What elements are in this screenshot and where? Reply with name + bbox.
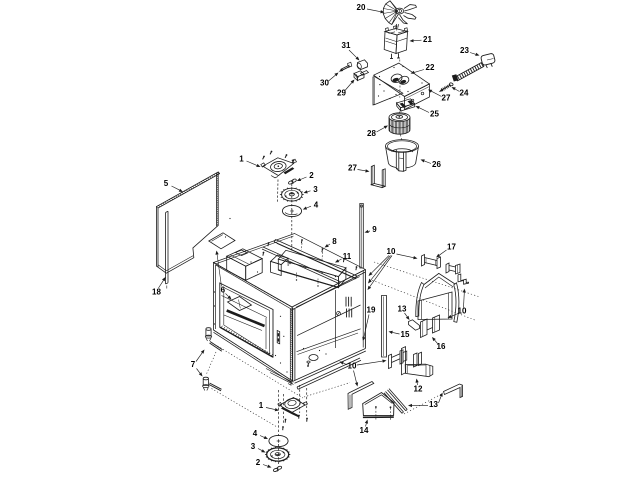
- svg-text:27: 27: [442, 94, 451, 103]
- svg-text:13: 13: [398, 305, 407, 314]
- svg-text:14: 14: [360, 426, 369, 435]
- svg-text:4: 4: [314, 201, 319, 210]
- svg-text:3: 3: [313, 185, 318, 194]
- svg-text:19: 19: [367, 306, 376, 315]
- svg-text:3: 3: [251, 442, 256, 451]
- svg-text:2: 2: [256, 458, 261, 467]
- svg-text:30: 30: [320, 79, 329, 88]
- svg-text:11: 11: [343, 252, 352, 261]
- svg-text:27: 27: [348, 164, 357, 173]
- svg-text:21: 21: [423, 35, 432, 44]
- svg-text:23: 23: [460, 46, 469, 55]
- svg-text:10: 10: [348, 362, 357, 371]
- svg-text:18: 18: [152, 288, 161, 297]
- svg-text:25: 25: [430, 110, 439, 119]
- svg-text:7: 7: [191, 360, 196, 369]
- svg-text:20: 20: [357, 3, 366, 12]
- svg-text:12: 12: [414, 385, 423, 394]
- svg-text:8: 8: [332, 237, 337, 246]
- svg-text:10: 10: [387, 247, 396, 256]
- svg-text:24: 24: [460, 89, 469, 98]
- svg-text:31: 31: [342, 41, 351, 50]
- svg-text:1: 1: [259, 401, 264, 410]
- svg-text:4: 4: [253, 429, 258, 438]
- svg-text:15: 15: [401, 330, 410, 339]
- svg-text:5: 5: [164, 179, 169, 188]
- svg-text:26: 26: [432, 160, 441, 169]
- svg-text:9: 9: [372, 225, 377, 234]
- svg-text:1: 1: [239, 155, 244, 164]
- svg-text:17: 17: [447, 243, 456, 252]
- svg-text:13: 13: [429, 400, 438, 409]
- svg-text:22: 22: [426, 63, 435, 72]
- svg-text:2: 2: [309, 171, 314, 180]
- svg-text:6: 6: [221, 286, 226, 295]
- svg-text:28: 28: [367, 129, 376, 138]
- svg-text:10: 10: [458, 307, 467, 316]
- svg-text:16: 16: [437, 342, 446, 351]
